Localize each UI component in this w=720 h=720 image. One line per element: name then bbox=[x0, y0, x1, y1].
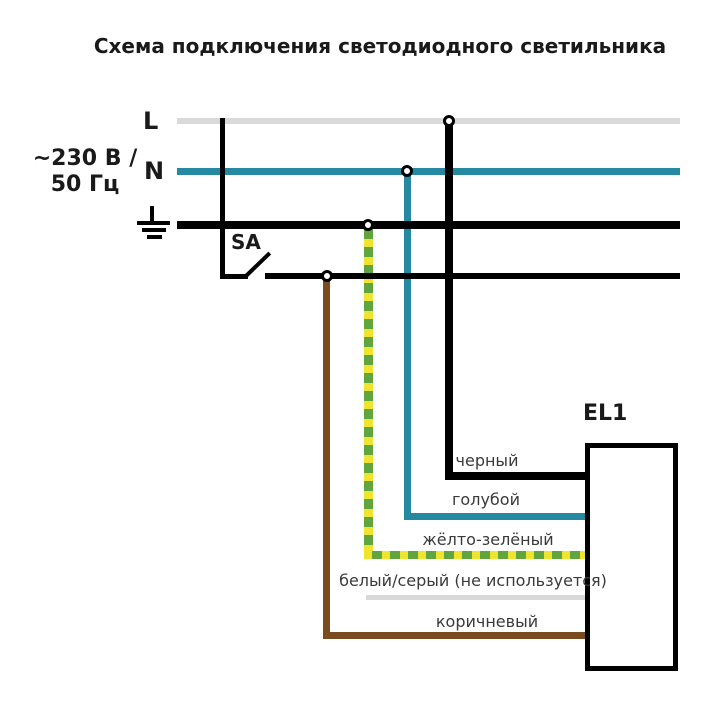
brown-wire-horizontal bbox=[323, 632, 590, 639]
ground-bar-3 bbox=[147, 235, 162, 239]
n-bus-line bbox=[177, 168, 680, 175]
switch-label: SA bbox=[231, 230, 261, 254]
white-gray-wire bbox=[366, 595, 590, 600]
junction-node-pe bbox=[362, 219, 374, 231]
ground-bar-1 bbox=[137, 221, 170, 225]
wiring-diagram: Схема подключения светодиодного светильн… bbox=[0, 0, 720, 720]
yellow-green-wire-horizontal bbox=[364, 551, 590, 559]
junction-node-switch bbox=[321, 270, 333, 282]
luminaire-box bbox=[585, 443, 678, 671]
diagram-title: Схема подключения светодиодного светильн… bbox=[40, 34, 720, 58]
blue-wire-label: голубой bbox=[336, 490, 636, 509]
junction-node-l bbox=[443, 115, 455, 127]
white-gray-wire-label: белый/серый (не используется) bbox=[323, 571, 623, 590]
junction-node-n bbox=[401, 165, 413, 177]
brown-wire-label: коричневый bbox=[337, 612, 637, 631]
yellow-green-wire-label: жёлто-зелёный bbox=[338, 530, 638, 549]
black-wire-horizontal bbox=[445, 472, 590, 480]
source-voltage-label: ~230 В / 50 Гц bbox=[25, 146, 145, 198]
l-bus-line bbox=[177, 118, 680, 124]
black-wire-label: черный bbox=[337, 451, 637, 470]
switch-input-wire bbox=[220, 118, 225, 279]
black-wire-vertical bbox=[445, 118, 453, 480]
voltage-line2: 50 Гц bbox=[25, 172, 145, 198]
ground-bar-2 bbox=[142, 228, 166, 232]
n-bus-label: N bbox=[144, 157, 164, 185]
blue-wire-horizontal bbox=[404, 513, 590, 520]
voltage-line1: ~230 В / bbox=[25, 146, 145, 172]
l-bus-label: L bbox=[143, 107, 158, 135]
pe-bus-line bbox=[177, 221, 680, 229]
luminaire-label: EL1 bbox=[583, 401, 627, 426]
